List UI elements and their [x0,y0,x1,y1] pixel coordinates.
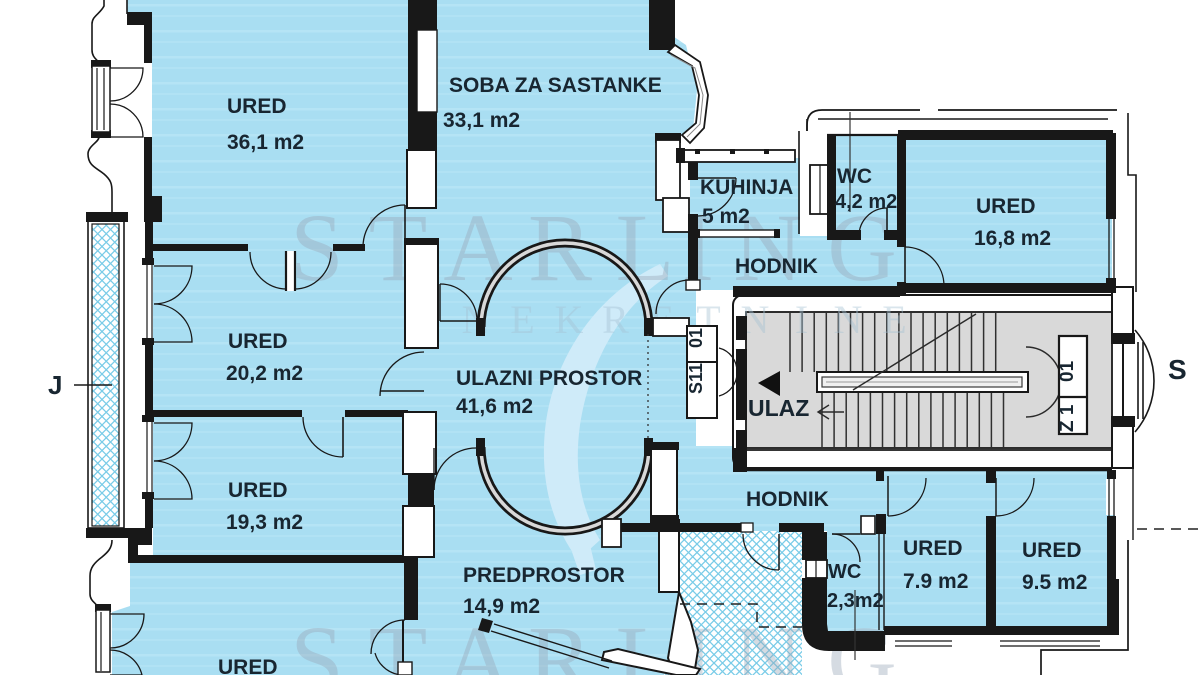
svg-text:Z 1: Z 1 [1057,404,1078,432]
svg-text:A: A [443,194,512,301]
svg-text:7.9 m2: 7.9 m2 [903,570,968,593]
svg-text:J: J [48,370,62,400]
svg-text:HODNIK: HODNIK [735,255,818,278]
svg-text:E: E [882,297,906,342]
svg-text:URED: URED [227,95,287,118]
svg-text:16,8 m2: 16,8 m2 [974,227,1051,250]
svg-text:KUHINJA: KUHINJA [700,176,793,199]
svg-text:ULAZNI PROSTOR: ULAZNI PROSTOR [456,367,642,390]
svg-text:20,2 m2: 20,2 m2 [226,362,303,385]
svg-text:URED: URED [976,195,1036,218]
svg-text:19,3 m2: 19,3 m2 [226,511,303,534]
svg-text:URED: URED [228,330,288,353]
svg-text:SOBA ZA SASTANKE: SOBA ZA SASTANKE [449,74,662,97]
svg-text:2,3m2: 2,3m2 [827,590,884,612]
svg-text:01: 01 [686,328,706,348]
svg-text:5 m2: 5 m2 [702,205,750,228]
svg-text:WC: WC [828,561,861,583]
svg-text:R: R [602,297,629,342]
svg-text:URED: URED [1022,539,1082,562]
svg-text:4,2 m2: 4,2 m2 [835,191,897,213]
svg-text:9.5 m2: 9.5 m2 [1022,571,1087,594]
svg-text:HODNIK: HODNIK [746,488,829,511]
svg-text:S11: S11 [686,363,706,394]
svg-text:K: K [555,297,584,342]
svg-text:41,6 m2: 41,6 m2 [456,395,533,418]
svg-text:WC: WC [837,165,872,188]
svg-text:URED: URED [228,479,288,502]
svg-text:PREDPROSTOR: PREDPROSTOR [463,564,625,587]
svg-text:14,9 m2: 14,9 m2 [463,595,540,618]
svg-text:36,1 m2: 36,1 m2 [227,131,304,154]
svg-text:N: N [733,606,802,675]
svg-text:E: E [510,297,534,342]
svg-text:I: I [795,297,808,342]
svg-text:URED: URED [903,537,963,560]
svg-text:33,1 m2: 33,1 m2 [443,109,520,132]
svg-text:N: N [834,297,863,342]
svg-text:ULAZ: ULAZ [748,395,809,421]
svg-text:01: 01 [1057,360,1078,382]
svg-text:URED: URED [218,656,278,675]
svg-text:S: S [1168,354,1187,385]
svg-text:S: S [290,606,343,675]
